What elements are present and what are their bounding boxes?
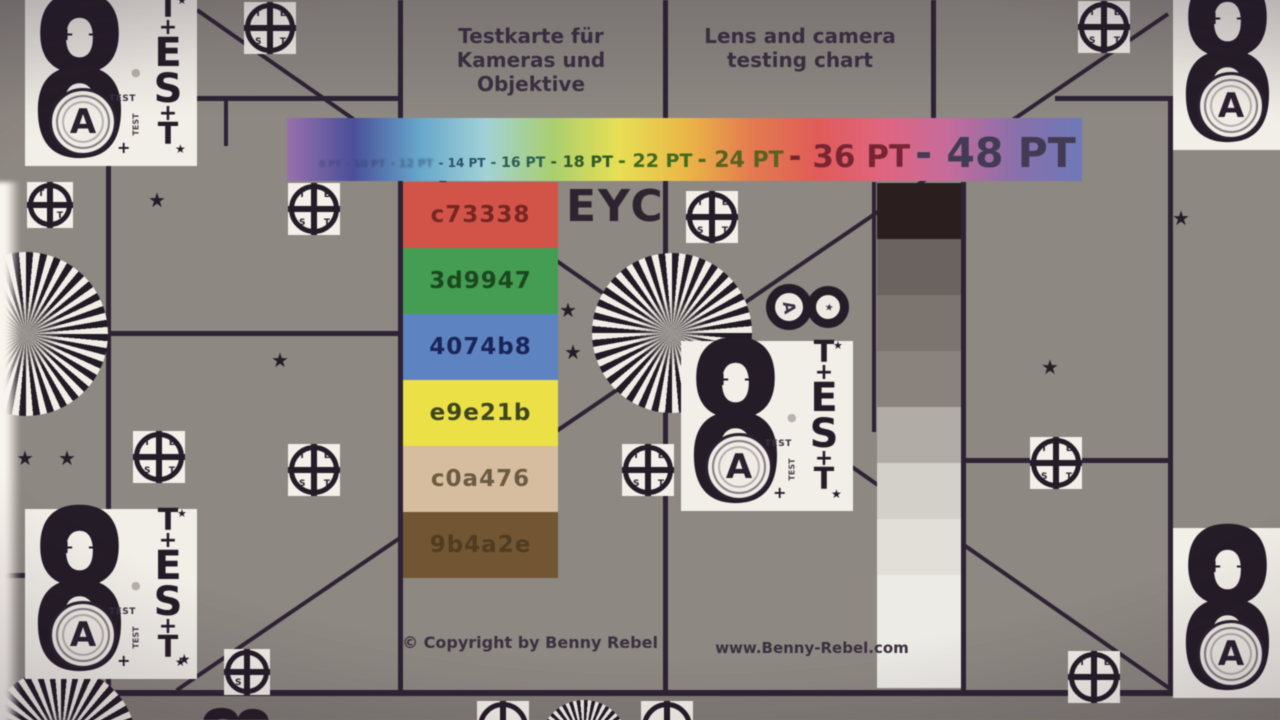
target-cross [311,183,317,235]
crosshair-target-partial [641,701,693,720]
website-text: www.Benny-Rebel.com [668,639,956,657]
gray-step [877,183,961,239]
target-letter: S [697,226,703,236]
target-letter: T [299,190,305,200]
tiny-test-word: TEST [132,113,141,135]
pt-label: 8 PT [319,160,341,170]
circled-letter-a: A [1197,72,1265,140]
gray-step [877,295,961,351]
test-chart: 8 PT - 10 PT - 12 PT - 14 PT - 16 PT - 1… [0,0,1280,720]
pt-label: - 48 PT [915,129,1076,177]
target-letter: T [324,479,330,489]
pt-label: - 16 PT [490,155,545,171]
gray-step [877,519,961,575]
plus-mark: + [87,537,102,558]
target-cross [244,649,250,695]
star-mark: ★ [564,340,582,364]
grid-line [106,331,401,336]
color-patch-column: c73338 3d9947 4074b8 e9e21b c0a476 9b4a2… [403,182,558,578]
tiny-test-word: TEST [765,439,792,449]
dot-icon: ● [787,411,797,424]
grid-line [1055,96,1173,101]
font-size-test-bar: 8 PT - 10 PT - 12 PT - 14 PT - 16 PT - 1… [287,118,1082,181]
crosshair-target-partial [477,701,529,720]
dot-icon: ● [131,579,141,592]
crosshair-target: TEST [244,2,296,54]
target-letter: E [722,198,728,208]
title-german-line1: Testkarte für [400,24,662,48]
mini-rotated-eight-logo: A ★ [766,284,849,330]
tiny-test-word: TEST [109,607,136,617]
target-letter: S [1041,472,1047,482]
letter-a: A [70,615,96,655]
star-mark: ★ [1172,206,1190,230]
target-letter: S [255,37,261,47]
test-logo-block-top-right: 8 A + + T + E S + T ★ [1173,0,1280,150]
target-letter: T [658,479,664,489]
plus-mark: + [715,369,730,390]
star-mark: ★ [271,348,289,372]
target-letter: T [169,466,175,476]
target-letter: E [169,438,175,448]
target-letter: T [1041,444,1047,454]
crosshair-target: TEST [133,431,185,483]
target-letter: E [658,451,664,461]
star-mark: ★ [1041,355,1059,379]
target-letter: E [280,9,286,19]
copyright-text: © Copyright by Benny Rebel [402,633,658,652]
plus-mark: + [773,483,786,502]
vertical-test-label: T + E S + T [797,339,851,493]
gray-step-white [877,575,961,688]
letter-a: A [1218,634,1244,674]
color-patch-hex-label: 3d9947 [429,268,531,294]
crosshair-target: TEST [288,183,340,235]
star-icon: ★ [822,302,834,313]
vertical-test-label: T + E S + T [141,0,195,148]
figure-eight: 8 [197,704,278,720]
target-letter: E [1066,444,1072,454]
gray-step [877,351,961,407]
vertical-test-label: T + E S + T [141,507,195,661]
target-cross [1053,437,1059,489]
target-cross [709,191,715,243]
plus-mark: + [1235,8,1250,29]
target-cross [645,444,651,496]
star-icon: ★ [831,487,842,501]
test-logo-block-top-left: 8 A + + + T + E S + T TEST TEST ★ ★ ● [25,0,197,166]
font-size-labels: 8 PT - 10 PT - 12 PT - 14 PT - 16 PT - 1… [319,129,1076,177]
target-cross [500,701,506,720]
title-english-line1: Lens and camera [670,24,930,48]
target-letter: S [299,479,305,489]
circled-letter-a: A [1197,620,1265,688]
target-letter: E [324,451,330,461]
star-icon: ★ [177,507,187,520]
plus-mark: + [59,537,74,558]
color-patch-hex-label: 4074b8 [429,334,531,360]
plus-mark: + [59,24,74,45]
circled-letter-a: A [705,433,773,501]
tiny-test-word: TEST [109,94,136,104]
target-letter: T [324,218,330,228]
color-patch-skin: c0a476 [403,446,558,512]
target-letter: T [57,211,63,221]
target-letter: S [299,218,305,228]
pt-label: - 24 PT [697,148,783,173]
target-letter: E [1104,658,1110,668]
target-cross [156,431,162,483]
target-letter: E [324,190,330,200]
target-cross [1101,1,1107,53]
target-letter: T [1089,8,1095,18]
target-letter: T [144,438,150,448]
grayscale-step-wedge [877,183,961,688]
crosshair-target: TEST [288,444,340,496]
target-letter: T [299,451,305,461]
star-icon: ★ [833,339,843,352]
color-patch-green: 3d9947 [403,248,558,314]
crosshair-target: TEST [1030,437,1082,489]
circled-letter-a: A [49,88,117,156]
target-cross [1091,651,1097,703]
plus-mark: + [87,24,102,45]
circled-letter-a: A [49,601,117,669]
eyc-label: EYC [566,181,665,232]
crosshair-target: TT [27,182,73,228]
target-letter: S [1089,36,1095,46]
gray-step [877,463,961,519]
color-patch-hex-label: 9b4a2e [430,532,532,558]
crosshair-target: TEST [622,444,674,496]
target-letter: T [633,451,639,461]
star-icon: ★ [175,142,186,156]
target-letter: S [144,466,150,476]
letter-a: A [70,102,96,142]
target-letter: T [280,37,286,47]
letter-a: A [1218,86,1244,126]
grid-line [872,182,876,432]
pt-label: - 10 PT [346,159,385,170]
plus-mark: + [1207,8,1222,29]
star-mark: ★ [58,446,76,470]
plus-mark: + [117,651,130,670]
test-logo-block-bottom-left: 8 A + + + T + E S + T TEST TEST ★ ★ ● [25,509,197,679]
target-letter: T [255,9,261,19]
star-mark: ★ [559,298,577,322]
pt-label: - 18 PT [550,152,613,171]
grid-line [224,98,228,146]
star-mark: ★ [148,188,166,212]
target-cross [267,2,273,54]
color-patch-yellow: e9e21b [403,380,558,446]
title-german: Testkarte für Kameras und Objektive [400,24,662,96]
target-letter: T [697,198,703,208]
target-cross [47,182,53,228]
crosshair-target: S [224,649,270,695]
color-patch-red: c73338 [403,182,558,248]
target-letter: T [1066,472,1072,482]
target-letter: S [235,678,241,688]
color-patch-blue: 4074b8 [403,314,558,380]
pt-label: - 12 PT [390,157,433,170]
tiny-test-word: TEST [132,626,141,648]
title-english-line2: testing chart [670,48,930,72]
color-patch-hex-label: e9e21b [430,400,532,426]
plus-mark: + [743,369,758,390]
title-english: Lens and camera testing chart [670,24,930,72]
target-cross [311,444,317,496]
gray-step [877,407,961,463]
pt-label: - 22 PT [618,150,692,172]
grid-line [195,96,403,101]
title-german-line2: Kameras und Objektive [400,48,662,96]
mini-eight-loop: A [766,284,812,330]
target-cross [664,701,670,720]
crosshair-target: TEST [686,191,738,243]
pt-label: - 14 PT [438,156,485,170]
partial-eight-bottom-edge: 8 [197,694,291,720]
crosshair-target: TE [1068,651,1120,703]
target-letter: S [633,479,639,489]
target-letter: E [1114,8,1120,18]
target-letter: T [722,226,728,236]
plus-mark: + [1207,556,1222,577]
plus-mark: + [1235,556,1250,577]
dot-icon: ● [131,66,141,79]
target-letter: T [1079,658,1085,668]
star-mark: ★ [178,652,191,668]
target-letter: T [1114,36,1120,46]
plus-mark: + [117,138,130,157]
paper-edge-highlight [0,182,20,720]
gray-step [877,239,961,295]
test-logo-block-bottom-right: 8 A + + ★ [1173,528,1280,698]
letter-a: A [726,447,752,487]
crosshair-target: TEST [1078,1,1130,53]
letter-a: A [779,299,800,315]
mini-eight-loop: ★ [807,286,849,328]
star-icon: ★ [177,0,187,7]
color-patch-hex-label: c73338 [431,202,531,228]
grid-line [961,182,966,692]
color-patch-brown: 9b4a2e [403,512,558,578]
grid-line [931,0,936,118]
color-patch-hex-label: c0a476 [431,466,530,492]
camera-test-chart-photo: 8 PT - 10 PT - 12 PT - 14 PT - 16 PT - 1… [0,0,1280,720]
pt-label: - 36 PT [789,139,910,175]
test-logo-block-center: 8 A + + + T + E S + T TEST TEST ★ ★ ● [681,341,853,511]
tiny-test-word: TEST [788,458,797,480]
target-letter: T [38,189,44,199]
